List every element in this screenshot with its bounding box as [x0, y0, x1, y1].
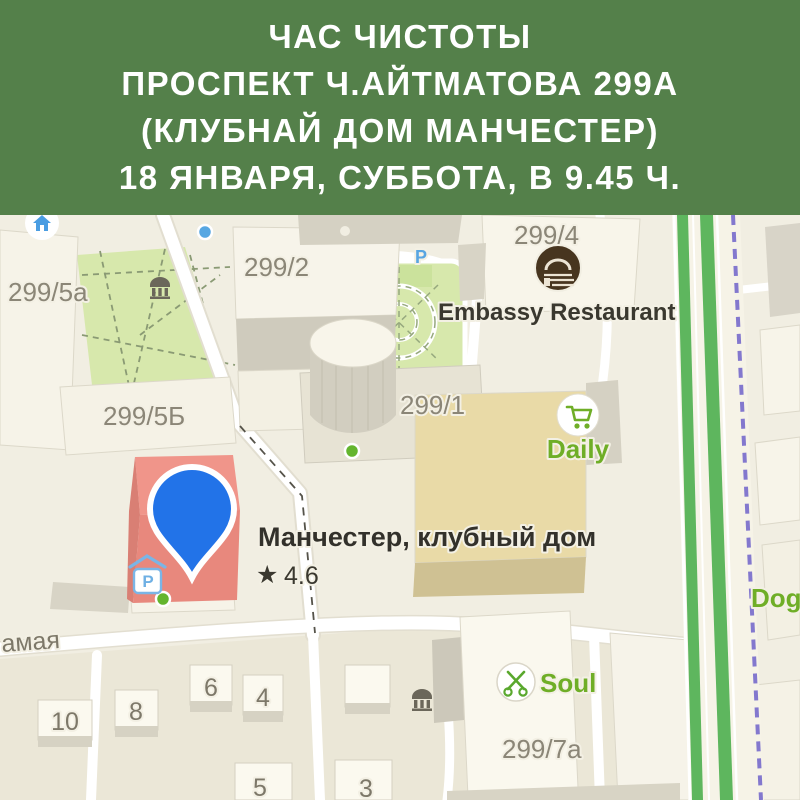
- house-number-4: 4: [256, 684, 270, 712]
- soul-label[interactable]: Soul: [540, 668, 596, 698]
- label-299-5a: 299/5a: [8, 277, 88, 307]
- banner-line-1: ЧАС ЧИСТОТЫ: [268, 20, 531, 54]
- map-canvas[interactable]: P P 299/5a 299/2 299/4 299/5Б 299/1 299/…: [0, 215, 800, 800]
- label-299-4: 299/4: [514, 220, 579, 250]
- tower-roof: [310, 319, 396, 367]
- soul-scissors-icon[interactable]: [497, 663, 535, 701]
- star-icon: ★: [256, 561, 278, 589]
- parking-letter: P: [415, 247, 427, 267]
- banner-line-4: 18 ЯНВАРЯ, СУББОТА, В 9.45 Ч.: [119, 161, 681, 195]
- entrance-dot[interactable]: [156, 592, 170, 606]
- entrance-dot[interactable]: [345, 444, 359, 458]
- house-number-3: 3: [359, 775, 373, 800]
- event-banner: ЧАС ЧИСТОТЫ ПРОСПЕКТ Ч.АЙТМАТОВА 299А (К…: [0, 0, 800, 215]
- house-number-8: 8: [129, 698, 143, 726]
- building-299-7a: [460, 611, 578, 797]
- covered-parking-letter: P: [142, 572, 153, 591]
- house-number-5: 5: [253, 774, 267, 800]
- monument-icon[interactable]: [150, 277, 170, 299]
- street-name-label: амая: [0, 626, 60, 658]
- place-rating: 4.6: [284, 562, 319, 590]
- label-299-5b: 299/5Б: [103, 401, 185, 431]
- daily-cart-icon[interactable]: [557, 394, 599, 436]
- house-number-10: 10: [51, 708, 79, 736]
- monument-icon[interactable]: [412, 689, 432, 711]
- embassy-restaurant-icon[interactable]: [535, 245, 581, 291]
- daily-label[interactable]: Daily: [547, 434, 610, 464]
- house-number-6: 6: [204, 674, 218, 702]
- label-299-2: 299/2: [244, 252, 309, 282]
- dog-label[interactable]: Dog: [751, 583, 800, 613]
- screenshot-frame: ЧАС ЧИСТОТЫ ПРОСПЕКТ Ч.АЙТМАТОВА 299А (К…: [0, 0, 800, 800]
- embassy-restaurant-label[interactable]: Embassy Restaurant: [438, 299, 675, 326]
- banner-line-2: ПРОСПЕКТ Ч.АЙТМАТОВА 299А: [121, 67, 678, 101]
- label-299-7a: 299/7a: [502, 734, 582, 764]
- banner-line-3: (КЛУБНАЙ ДОМ МАНЧЕСТЕР): [141, 114, 659, 148]
- label-299-1: 299/1: [400, 390, 465, 420]
- place-name: Манчестер, клубный дом: [258, 522, 596, 552]
- transit-dot[interactable]: [198, 225, 212, 239]
